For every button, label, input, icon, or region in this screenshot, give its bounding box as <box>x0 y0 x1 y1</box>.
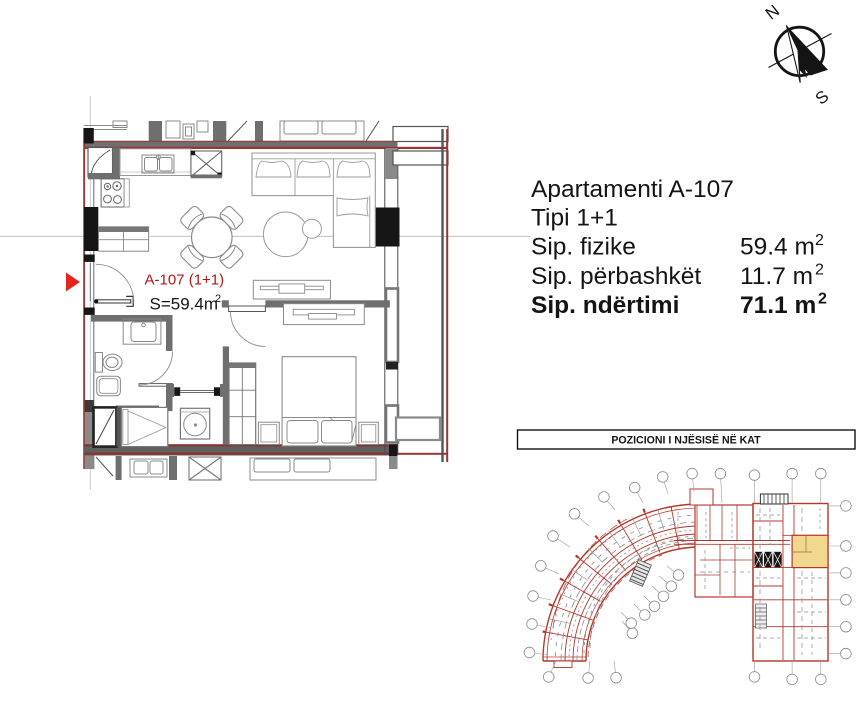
svg-text:Tipi 1+1: Tipi 1+1 <box>531 204 618 231</box>
svg-text:Sip. përbashkët: Sip. përbashkët <box>531 263 701 290</box>
svg-text:2: 2 <box>818 291 827 308</box>
svg-text:POZICIONI I NJËSISË NË KAT: POZICIONI I NJËSISË NË KAT <box>611 434 761 447</box>
svg-text:S=59.4m: S=59.4m <box>150 295 219 314</box>
svg-text:Sip. ndërtimi: Sip. ndërtimi <box>531 292 679 319</box>
svg-text:2: 2 <box>815 232 824 249</box>
svg-text:2: 2 <box>215 293 221 305</box>
svg-text:71.1 m: 71.1 m <box>740 292 816 319</box>
svg-text:Apartamenti A-107: Apartamenti A-107 <box>531 176 734 203</box>
svg-text:A-107 (1+1): A-107 (1+1) <box>145 272 225 289</box>
svg-text:2: 2 <box>815 261 824 278</box>
svg-text:59.4 m: 59.4 m <box>740 234 815 261</box>
svg-text:11.7 m: 11.7 m <box>740 263 813 290</box>
svg-text:Sip. fizike: Sip. fizike <box>531 234 636 261</box>
